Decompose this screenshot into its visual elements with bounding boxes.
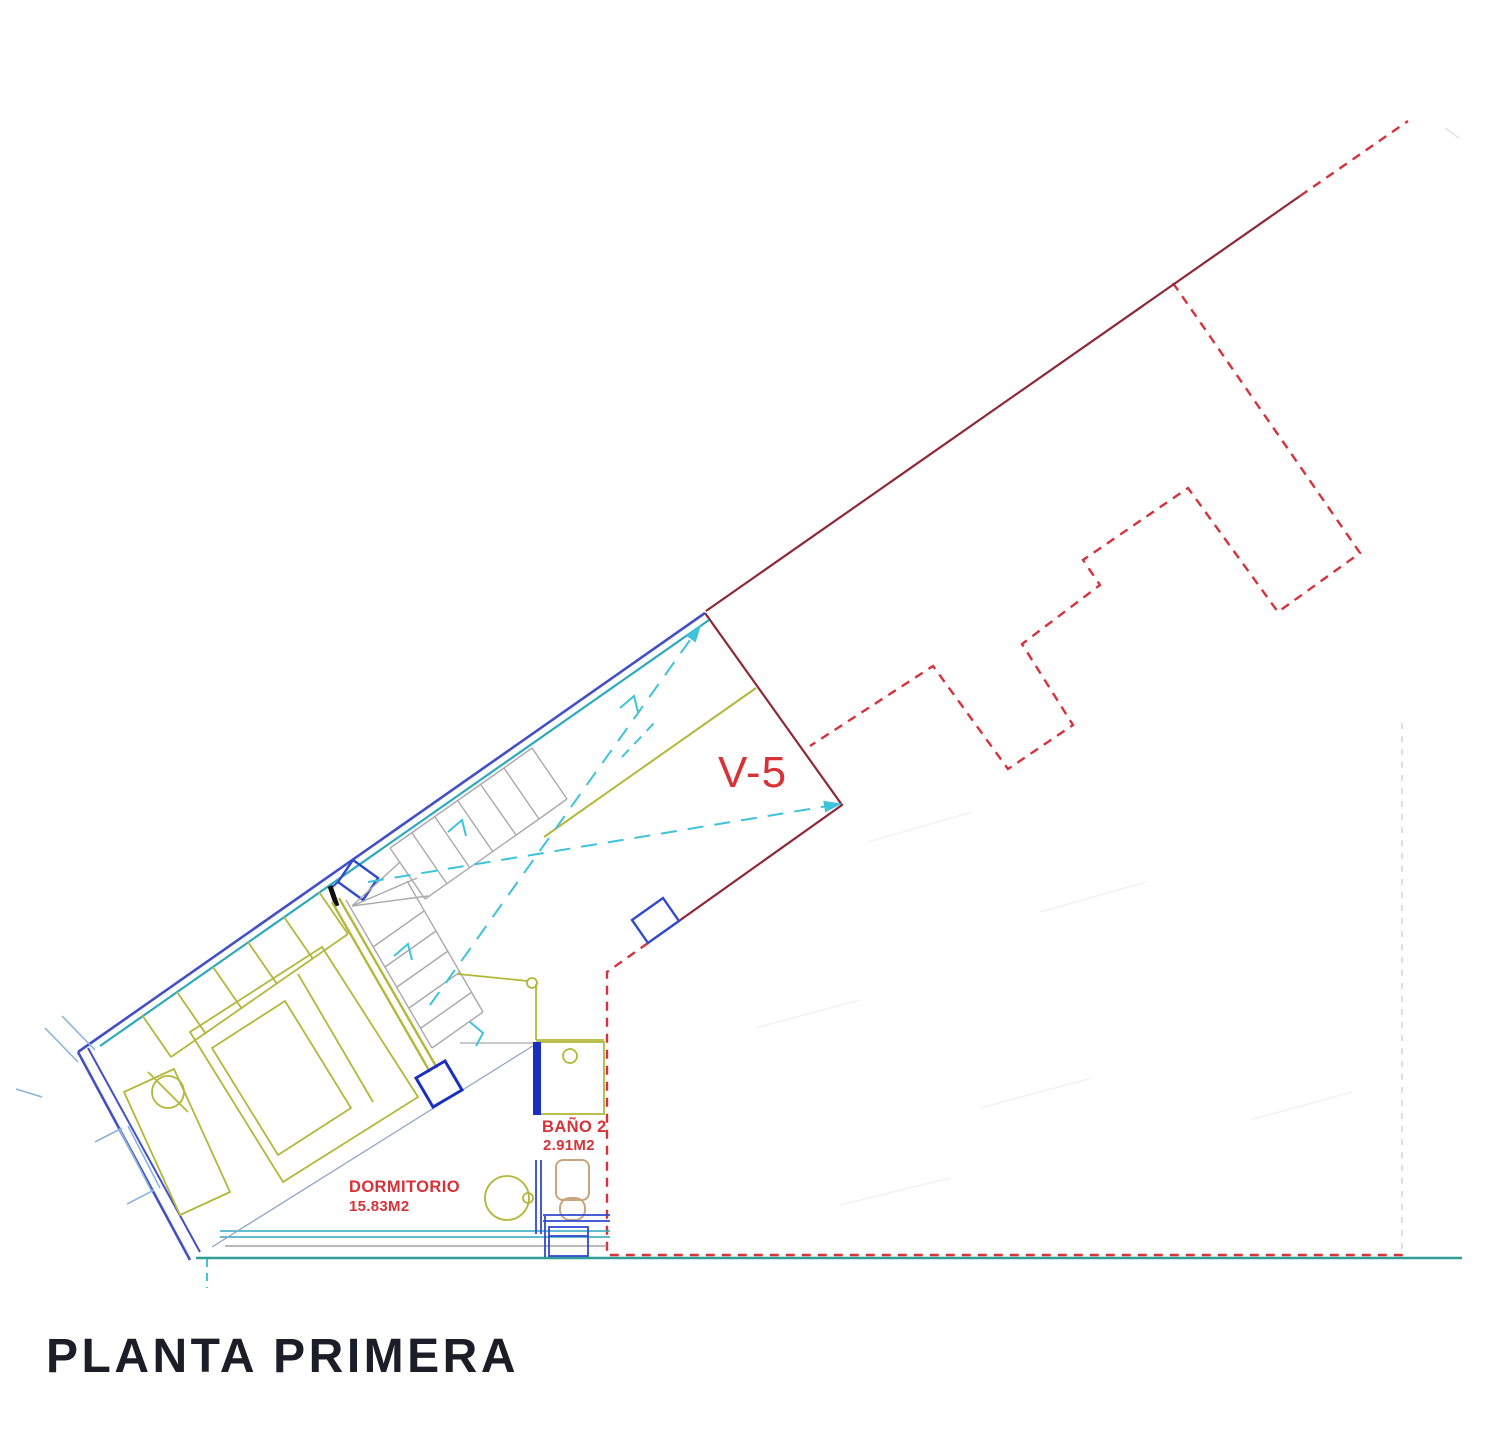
window-label: V-5 (718, 748, 787, 797)
edge-window-box (632, 898, 679, 943)
floor-plan-sheet: V-5 BAÑO 2 2.91M2 DORMITORIO 15.83M2 PLA… (0, 0, 1500, 1451)
bedroom-name-label: DORMITORIO (349, 1178, 460, 1196)
side-window-line-a (120, 1130, 152, 1192)
bedroom-area-label: 15.83M2 (349, 1198, 409, 1215)
sheet-title: PLANTA PRIMERA (46, 1330, 519, 1383)
staircase (346, 748, 567, 1048)
plot-edge-lines (648, 196, 1300, 943)
stair-lower-stringer-a (346, 900, 432, 1048)
stair-upper-stringer-b (425, 819, 539, 899)
stair-direction-arrows (207, 626, 840, 1288)
toilet-tank (556, 1160, 589, 1200)
site-boundary (607, 121, 1408, 1255)
plot-diagonal-line (706, 196, 1300, 611)
building-walls (78, 613, 705, 1260)
boundary-lower-edge (607, 943, 1403, 1255)
faint-guides (1402, 128, 1459, 1252)
sketch-marks (755, 812, 1352, 1205)
glazed-door (330, 860, 378, 906)
terrace-lines (196, 1043, 1462, 1258)
bath-door-leaf (458, 974, 528, 981)
stair-upper-stringer-a (390, 768, 504, 848)
bathroom-area-label: 2.91M2 (543, 1137, 595, 1154)
bed-blanket (212, 1001, 351, 1155)
faint-corner-tick (1445, 128, 1459, 138)
bathroom-name-label: BAÑO 2 (542, 1116, 607, 1136)
toilet-bowl (560, 1198, 585, 1220)
shower-drain (563, 1049, 577, 1063)
blue-features (416, 898, 679, 1107)
partition-wall (332, 688, 756, 1072)
wardrobe-front-line (171, 934, 348, 1057)
opening-cross-line-1 (430, 626, 700, 1005)
boundary-terrace-steps (810, 283, 1360, 769)
shower-tray (537, 1042, 604, 1114)
wardrobe (142, 892, 348, 1057)
lamp-slash (148, 1072, 188, 1112)
wall-southwest-inner (88, 1048, 200, 1252)
column-box (416, 1061, 462, 1107)
boundary-top-end (1300, 121, 1408, 196)
shower-wall-bar (533, 1042, 541, 1115)
bathroom (458, 974, 610, 1257)
wall-northwest-outer (78, 613, 705, 1052)
opening-cross-line-2 (368, 804, 840, 882)
